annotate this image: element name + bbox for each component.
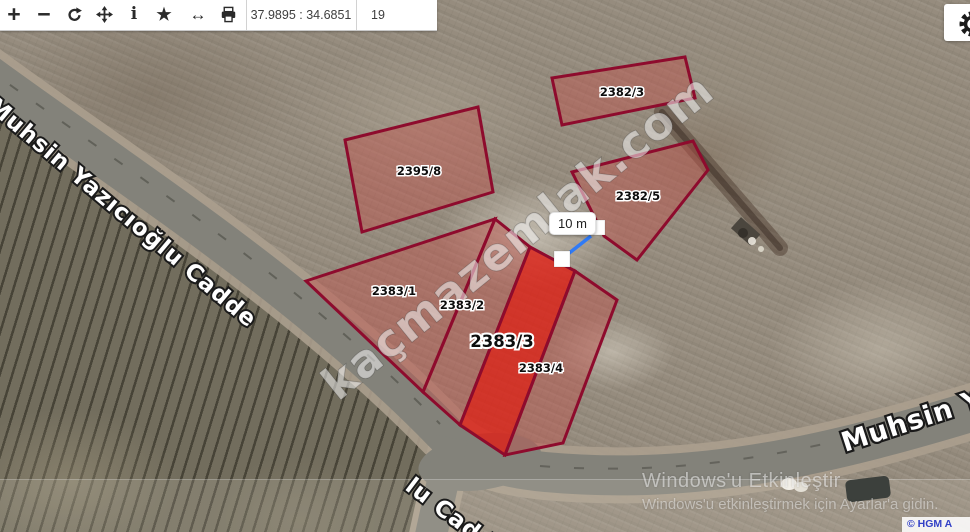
parcel-label: 2383/1 [372, 284, 416, 298]
measure-line [568, 236, 591, 254]
favorites-button[interactable]: ★ [150, 0, 178, 30]
measure-tooltip: 10 m [549, 212, 596, 235]
map-canvas[interactable]: kaçmazemlak.com Muhsin Yazıcıoğlu Cadde … [0, 0, 970, 532]
parcel-map-window: kaçmazemlak.com Muhsin Yazıcıoğlu Cadde … [0, 0, 970, 532]
gear-icon [957, 9, 970, 39]
map-toolbar: + − i ★ ↔ 37. [0, 0, 437, 31]
parcel-label: 2383/2 [440, 298, 484, 312]
move-icon [96, 6, 113, 23]
refresh-button[interactable] [60, 0, 88, 30]
zoom-out-button[interactable]: − [30, 0, 58, 30]
windows-activation-subtitle: Windows'u etkinleştirmek için Ayarlar'a … [642, 496, 938, 513]
measure-handle-2[interactable] [554, 251, 570, 267]
parcel-label: 2382/5 [616, 189, 660, 203]
refresh-icon [66, 6, 83, 23]
measure-button[interactable]: ↔ [184, 0, 212, 30]
map-attribution: © HGM A [902, 517, 970, 532]
settings-button[interactable] [944, 4, 970, 41]
parcel-label: 2382/3 [600, 85, 644, 99]
coordinates-readout: 37.9895 : 34.6851 [246, 0, 356, 30]
parcel-label: 2383/4 [519, 361, 563, 375]
parcel-label: 2395/8 [397, 164, 441, 178]
print-icon [220, 6, 237, 23]
map-overlay-svg: kaçmazemlak.com Muhsin Yazıcıoğlu Cadde … [0, 0, 970, 532]
parcel-label-selected: 2383/3 [470, 332, 533, 351]
zoom-level-readout: 19 [356, 0, 400, 30]
pan-button[interactable] [90, 0, 118, 30]
windows-activation-title: Windows'u Etkinleştir [642, 470, 841, 493]
info-button[interactable]: i [120, 0, 148, 30]
zoom-in-button[interactable]: + [0, 0, 28, 30]
print-button[interactable] [214, 0, 242, 30]
